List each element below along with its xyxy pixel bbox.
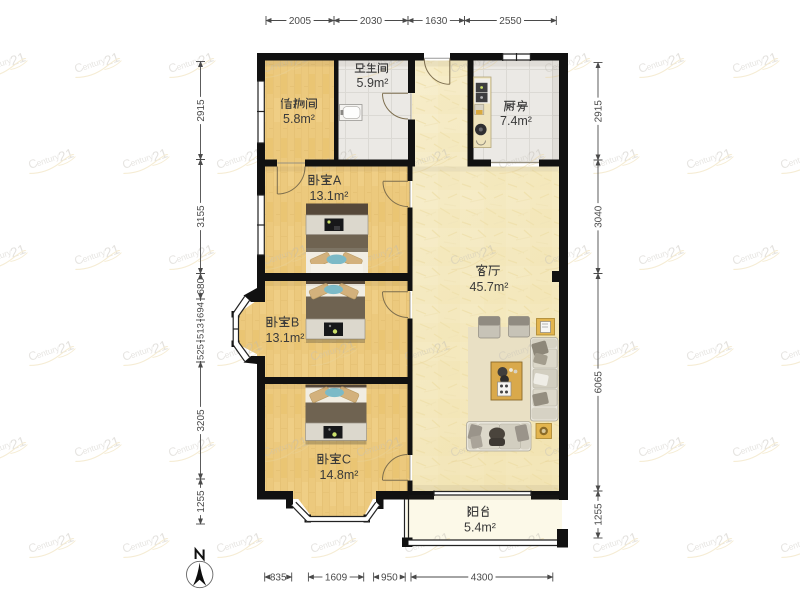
svg-text:1255: 1255 bbox=[593, 503, 604, 526]
svg-text:2030: 2030 bbox=[360, 16, 383, 27]
svg-text:5.9m²: 5.9m² bbox=[357, 76, 389, 90]
svg-text:2915: 2915 bbox=[593, 100, 604, 123]
svg-text:2005: 2005 bbox=[289, 16, 312, 27]
svg-text:513: 513 bbox=[196, 323, 207, 339]
svg-text:14.8m²: 14.8m² bbox=[320, 468, 359, 482]
svg-text:2915: 2915 bbox=[196, 99, 207, 122]
svg-text:13.1m²: 13.1m² bbox=[310, 189, 349, 203]
svg-text:835: 835 bbox=[270, 572, 287, 583]
svg-text:950: 950 bbox=[381, 572, 398, 583]
svg-text:5.8m²: 5.8m² bbox=[283, 112, 315, 126]
svg-text:680: 680 bbox=[196, 277, 207, 294]
svg-text:694: 694 bbox=[196, 302, 207, 318]
svg-text:1255: 1255 bbox=[196, 490, 207, 513]
svg-text:3205: 3205 bbox=[196, 409, 207, 432]
svg-text:7.4m²: 7.4m² bbox=[500, 114, 532, 128]
svg-text:3155: 3155 bbox=[196, 205, 207, 228]
svg-text:2550: 2550 bbox=[499, 16, 522, 27]
svg-text:1630: 1630 bbox=[425, 16, 448, 27]
svg-text:525: 525 bbox=[196, 344, 207, 360]
svg-text:4300: 4300 bbox=[471, 572, 494, 583]
svg-text:5.4m²: 5.4m² bbox=[464, 521, 496, 535]
svg-text:13.1m²: 13.1m² bbox=[266, 331, 305, 345]
svg-text:B: B bbox=[291, 315, 299, 329]
svg-text:6065: 6065 bbox=[593, 371, 604, 394]
svg-text:3040: 3040 bbox=[593, 205, 604, 228]
svg-text:45.7m²: 45.7m² bbox=[470, 280, 509, 294]
svg-text:1609: 1609 bbox=[325, 572, 348, 583]
svg-text:A: A bbox=[333, 173, 342, 187]
svg-text:C: C bbox=[342, 452, 351, 466]
